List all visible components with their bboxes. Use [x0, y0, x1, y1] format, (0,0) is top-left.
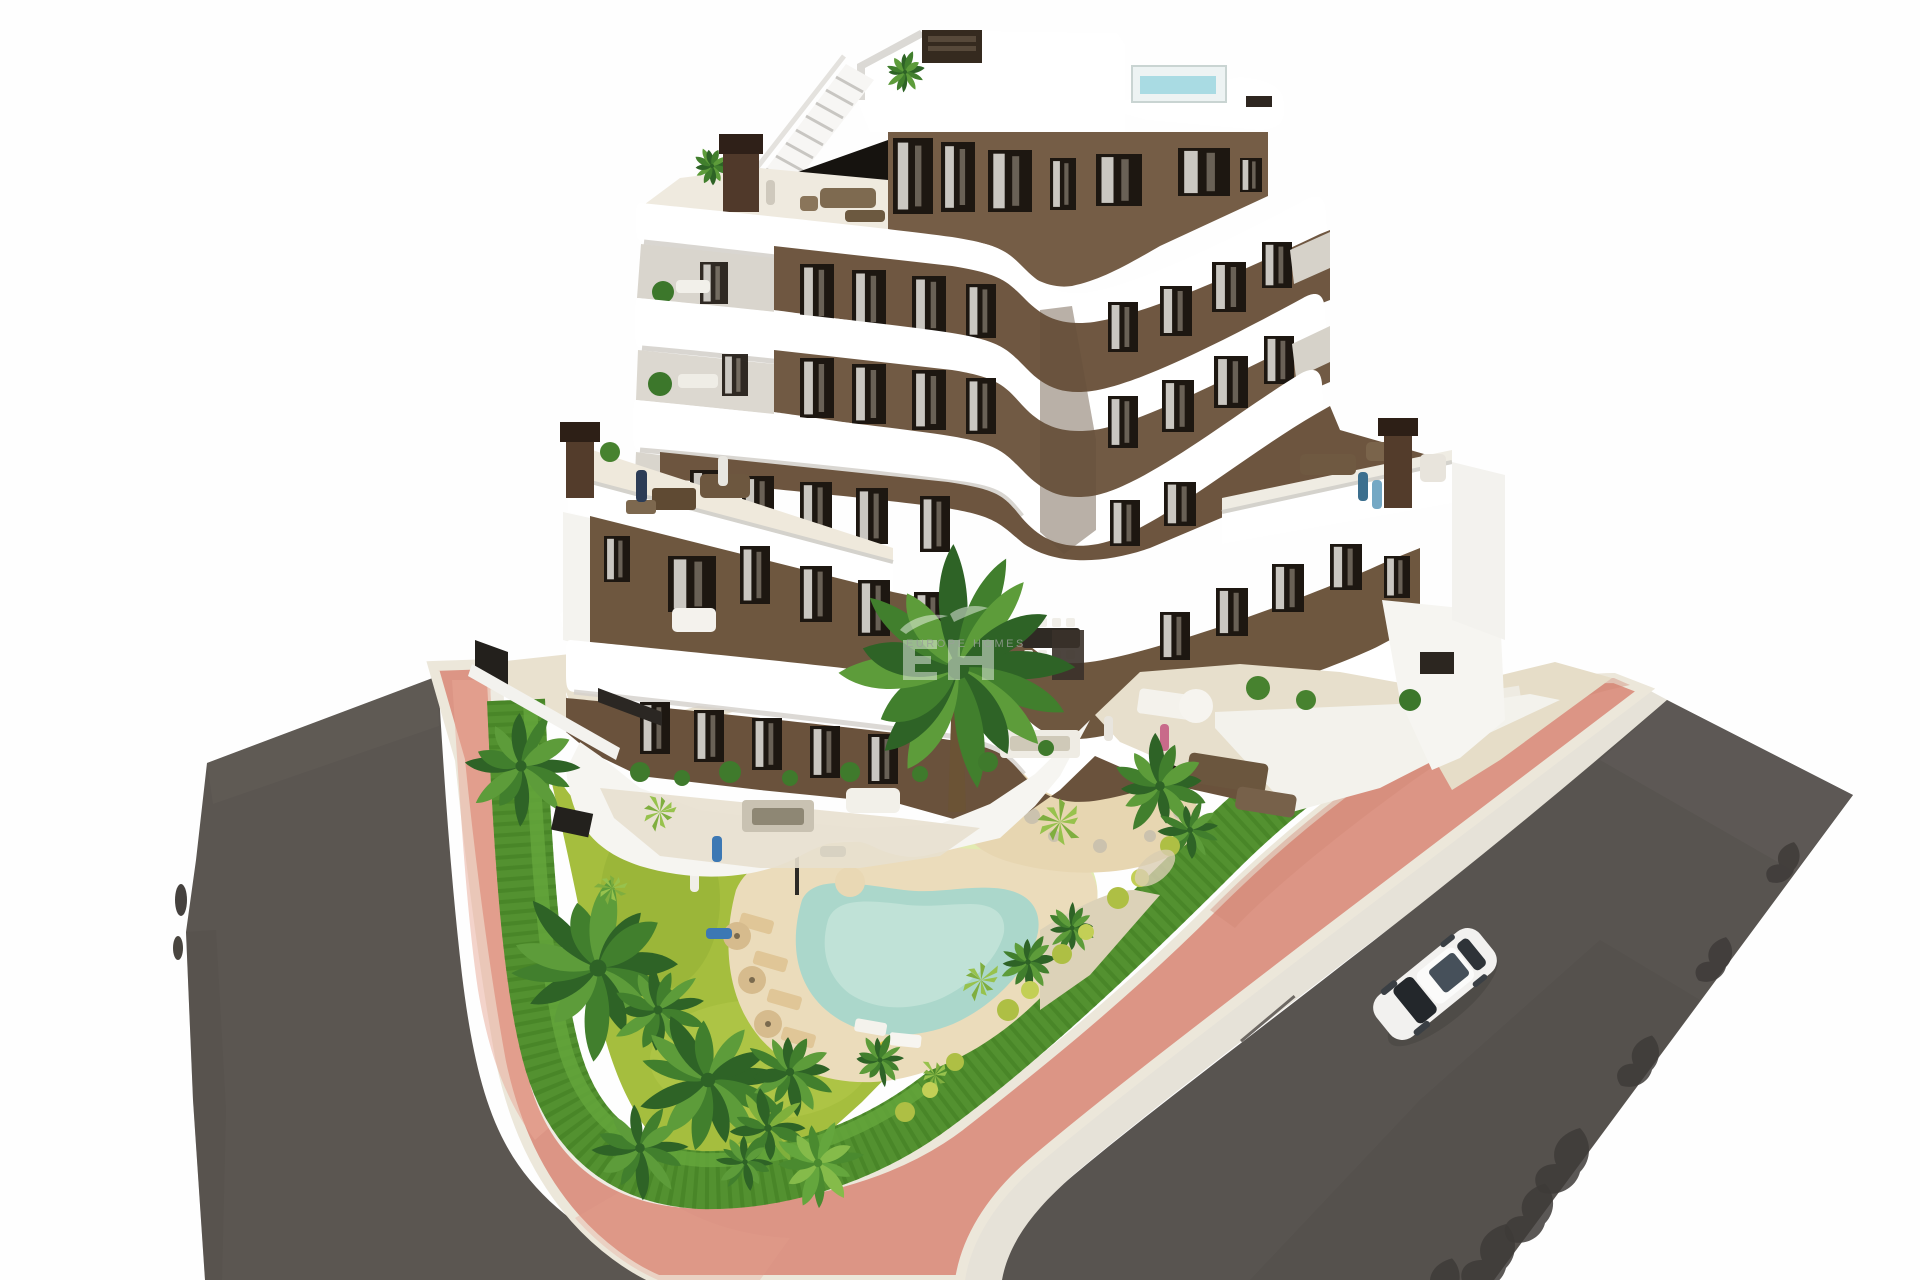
svg-text:EUROPE HOMES: EUROPE HOMES	[906, 638, 1026, 650]
